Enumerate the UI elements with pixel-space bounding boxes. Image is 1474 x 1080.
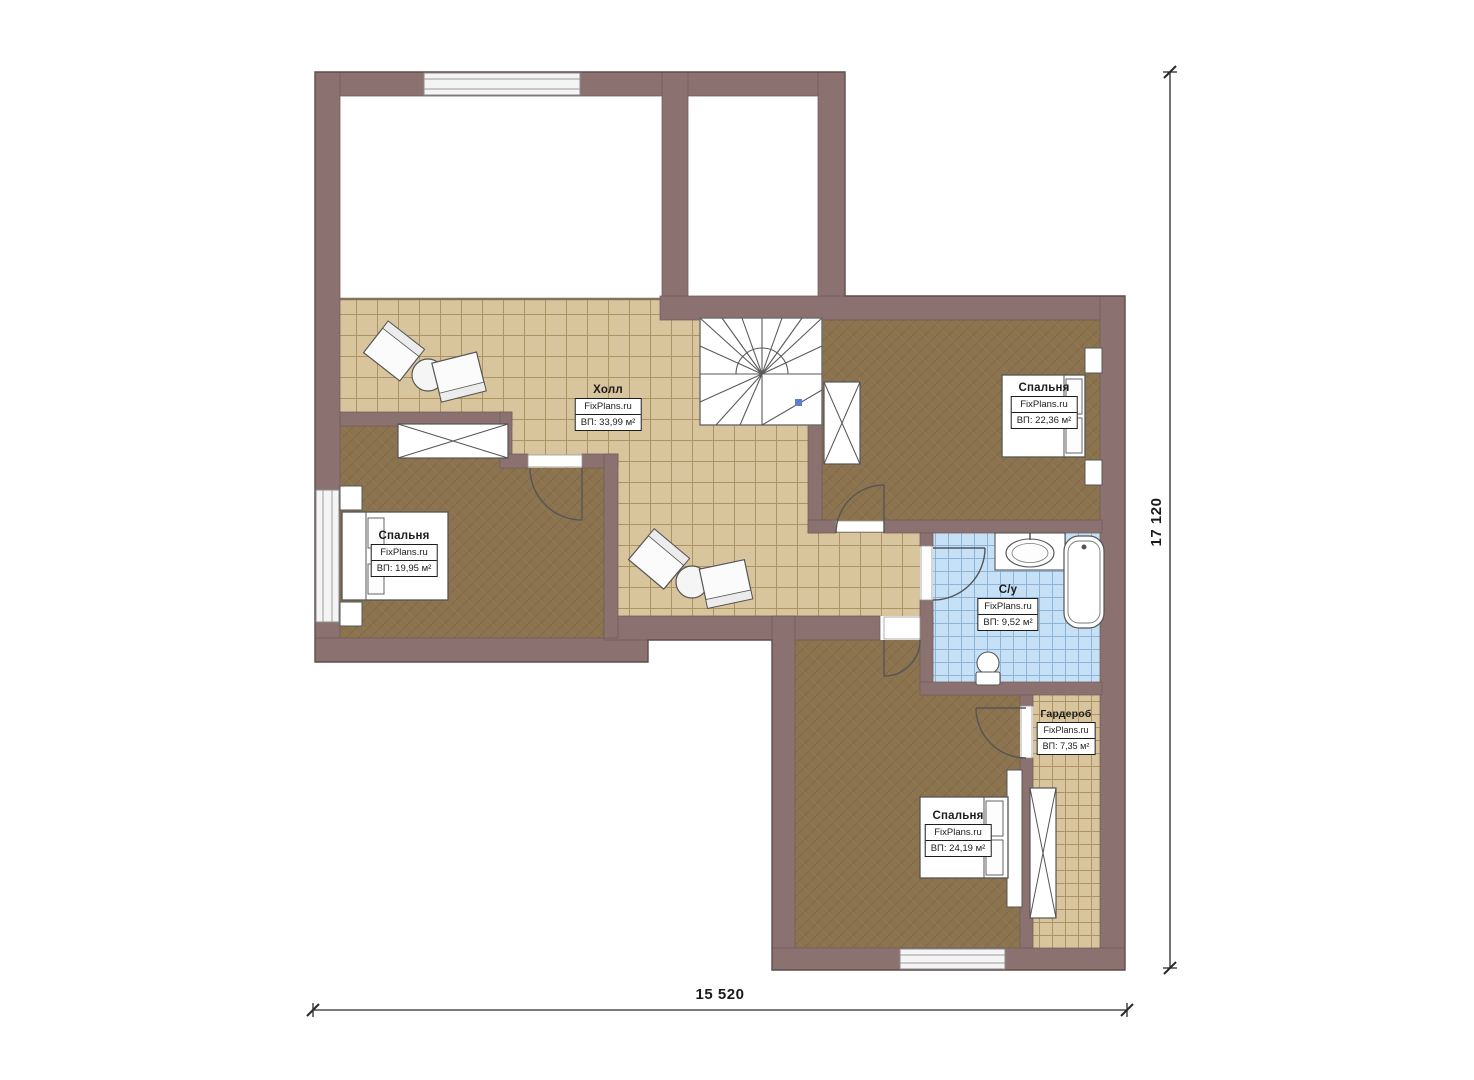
nightstand bbox=[1085, 460, 1102, 485]
nightstand bbox=[340, 486, 362, 510]
toilet-icon bbox=[976, 652, 1000, 685]
dimension-width-label: 15 520 bbox=[696, 986, 745, 1003]
brand-watermark: FixPlans.ru bbox=[576, 399, 641, 414]
room-name: Спальня bbox=[378, 530, 429, 542]
wall-void-right bbox=[818, 72, 845, 300]
floor-corridor bbox=[808, 533, 920, 616]
room-name: Гардероб bbox=[1040, 708, 1091, 720]
brand-watermark: FixPlans.ru bbox=[926, 825, 991, 840]
brand-watermark: FixPlans.ru bbox=[1012, 397, 1077, 412]
nightstand bbox=[340, 602, 362, 626]
room-info-box: FixPlans.ru ВП: 7,35 м² bbox=[1037, 722, 1096, 755]
sink-icon bbox=[995, 533, 1065, 570]
brand-watermark: FixPlans.ru bbox=[1038, 723, 1095, 738]
dimension-line-bottom bbox=[307, 1003, 1133, 1017]
room-label-bedroom-left: Спальня FixPlans.ru ВП: 19,95 м² bbox=[371, 530, 438, 577]
room-info-box: FixPlans.ru ВП: 24,19 м² bbox=[925, 824, 992, 857]
floor-plan-drawing bbox=[0, 0, 1474, 1080]
wall-below-voids bbox=[660, 296, 1125, 320]
floor-plan: Холл FixPlans.ru ВП: 33,99 м² Спальня Fi… bbox=[0, 0, 1474, 1080]
wall-bedroom-tr-bottom bbox=[808, 520, 836, 533]
room-info-box: FixPlans.ru ВП: 19,95 м² bbox=[371, 544, 438, 577]
room-label-bathroom: С/у FixPlans.ru ВП: 9,52 м² bbox=[977, 584, 1038, 631]
wall-void-separator bbox=[662, 72, 688, 300]
wall-bathroom-left bbox=[920, 533, 933, 546]
dimension-height-label: 17 120 bbox=[1148, 492, 1164, 552]
nightstand bbox=[1085, 348, 1102, 373]
room-area: ВП: 9,52 м² bbox=[978, 614, 1037, 630]
dimension-line-right bbox=[1163, 66, 1177, 974]
room-info-box: FixPlans.ru ВП: 33,99 м² bbox=[575, 398, 642, 431]
chair-icon bbox=[699, 560, 752, 609]
room-label-hall: Холл FixPlans.ru ВП: 33,99 м² bbox=[575, 384, 642, 431]
room-area: ВП: 19,95 м² bbox=[372, 560, 437, 576]
brand-watermark: FixPlans.ru bbox=[372, 545, 437, 560]
room-area: ВП: 33,99 м² bbox=[576, 414, 641, 430]
room-name: Спальня bbox=[932, 810, 983, 822]
room-label-wardrobe: Гардероб FixPlans.ru ВП: 7,35 м² bbox=[1037, 708, 1096, 755]
stair-direction-marker bbox=[795, 399, 802, 406]
wall-wardrobe-left bbox=[1020, 695, 1033, 706]
headboard bbox=[1007, 770, 1022, 907]
room-name: Спальня bbox=[1018, 382, 1069, 394]
wall-hall-bottom bbox=[604, 616, 880, 640]
wall-right bbox=[1100, 296, 1125, 970]
brand-watermark: FixPlans.ru bbox=[978, 599, 1037, 614]
window-bedroom-left bbox=[316, 490, 339, 622]
bathtub-icon bbox=[1064, 536, 1104, 628]
room-info-box: FixPlans.ru ВП: 22,36 м² bbox=[1011, 396, 1078, 429]
window-top bbox=[424, 73, 580, 95]
room-name: Холл bbox=[593, 384, 623, 396]
room-area: ВП: 24,19 м² bbox=[926, 840, 991, 856]
wall-bedroom-bottom-left bbox=[772, 616, 795, 970]
room-label-bedroom-bottom: Спальня FixPlans.ru ВП: 24,19 м² bbox=[925, 810, 992, 857]
room-area: ВП: 7,35 м² bbox=[1038, 738, 1095, 754]
wall-bedroom-left-right bbox=[604, 454, 618, 638]
room-area: ВП: 22,36 м² bbox=[1012, 412, 1077, 428]
room-name: С/у bbox=[999, 584, 1018, 596]
window-bottom bbox=[900, 949, 1005, 969]
wall-bathroom-bottom bbox=[920, 682, 1102, 695]
staircase bbox=[700, 318, 822, 425]
room-info-box: FixPlans.ru ВП: 9,52 м² bbox=[977, 598, 1038, 631]
room-label-bedroom-top-right: Спальня FixPlans.ru ВП: 22,36 м² bbox=[1011, 382, 1078, 429]
wall-bottom-left-block bbox=[315, 638, 648, 662]
